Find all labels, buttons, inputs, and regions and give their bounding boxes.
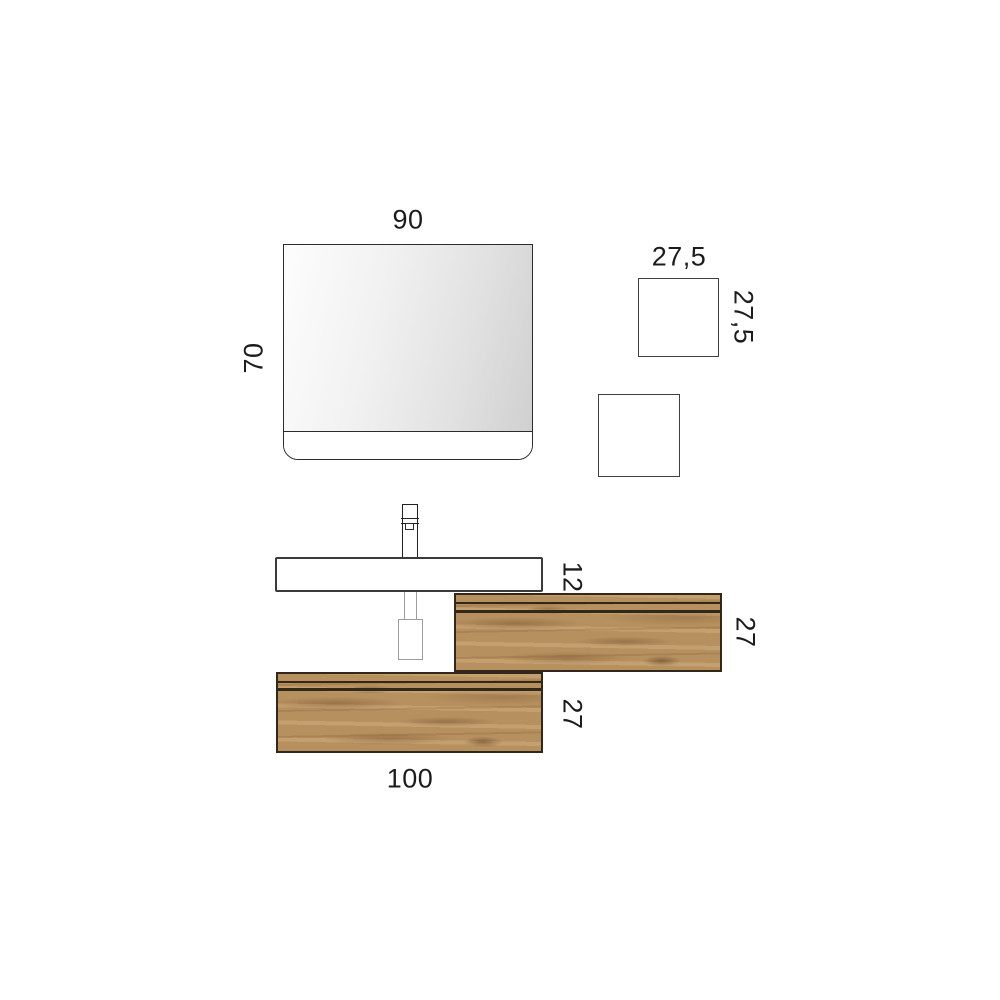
- cabinet-groove: [276, 681, 543, 683]
- cube-width-label: 27,5: [652, 244, 707, 271]
- washbasin-countertop: [275, 557, 543, 592]
- mirror-glass: [284, 245, 532, 432]
- faucet: [402, 504, 418, 557]
- mirror: [283, 244, 533, 460]
- lower-wall-cabinet: [276, 672, 543, 753]
- cabinet-groove: [454, 610, 722, 613]
- upper-wall-cabinet: [454, 593, 722, 672]
- mirror-width-label: 90: [392, 207, 423, 234]
- lower-cabinet-width-label: 100: [387, 766, 434, 793]
- furniture-dimension-diagram: 90 70 27,5 27,5 12 27 27 100: [0, 0, 1000, 1000]
- mirror-base-panel: [284, 432, 532, 459]
- wall-cube-top: [638, 278, 719, 357]
- upper-cabinet-height-label: 27: [732, 616, 759, 647]
- cube-height-label: 27,5: [730, 290, 757, 345]
- drain-pipe-trap: [398, 619, 423, 660]
- cabinet-groove: [454, 602, 722, 604]
- cabinet-groove: [276, 688, 543, 691]
- lower-cabinet-height-label: 27: [559, 698, 586, 729]
- wall-cube-bottom: [598, 394, 680, 477]
- mirror-height-label: 70: [241, 342, 268, 373]
- faucet-spout: [405, 523, 414, 530]
- drain-pipe-stem: [404, 592, 417, 621]
- countertop-height-label: 12: [559, 561, 586, 592]
